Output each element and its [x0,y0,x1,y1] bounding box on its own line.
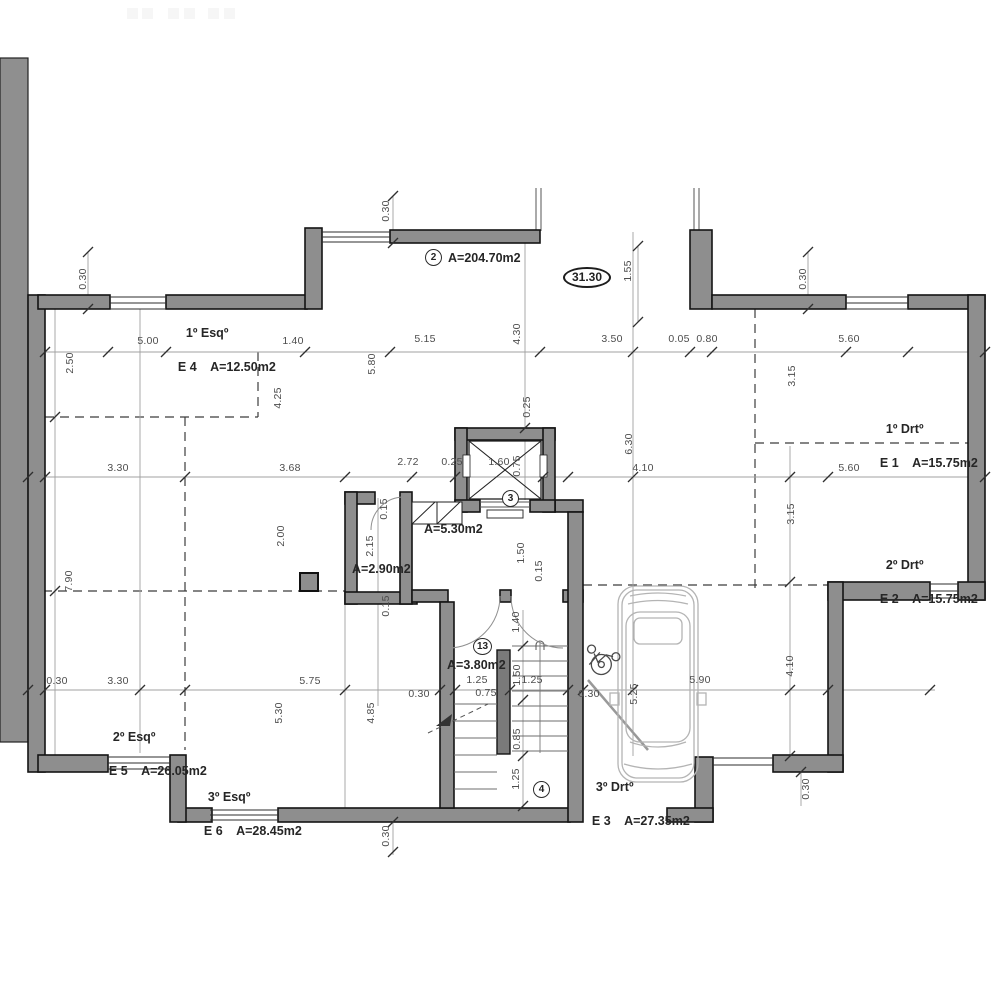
dim-label: 0.30 [380,825,392,846]
dim-label: 0.25 [441,456,462,468]
unit-area: E 2 A=15.75m2 [880,592,978,606]
room-label-wc: A=2.90m2 [352,562,411,576]
dim-label: 0.15 [533,560,545,581]
dim-label: 1.50 [511,664,523,685]
dim-label: 0.80 [696,333,717,345]
dim-label: 2.00 [275,525,287,546]
dim-label: 5.90 [689,674,710,686]
neighbor-building-wall [0,58,28,742]
unit-floor: 3º Drtº [592,780,634,794]
dim-label: 5.60 [838,462,859,474]
dim-label: 0.25 [521,396,533,417]
zone-2-label: 2 A=204.70m2 [425,249,521,266]
dim-label: 5.25 [628,683,640,704]
dim-label: 5.60 [838,333,859,345]
column-pillar [300,573,318,591]
dim-label: 3.30 [107,675,128,687]
dim-label: 3.68 [279,462,300,474]
dim-label: 1.25 [521,674,542,686]
dim-label: 4.10 [632,462,653,474]
entry-steps-hatch [412,502,462,524]
unit-label-e2: 2º Drtº E 2 A=15.75m2 [866,540,978,625]
dim-label: 0.15 [380,595,392,616]
dim-label: 0.30 [380,200,392,221]
unit-floor: 1º Drtº [880,422,924,436]
unit-label-e6: 3º Esqº E 6 A=28.45m2 [190,772,302,857]
dim-label: 0.30 [578,688,599,700]
dim-label: 1.25 [466,674,487,686]
elevator [412,428,555,524]
dim-label: 1.60 [488,456,509,468]
dim-label: 1.55 [622,260,634,281]
dim-label: 3.50 [601,333,622,345]
wheelchair-icon [579,635,623,679]
dim-label: 0.30 [46,675,67,687]
unit-area: E 1 A=15.75m2 [880,456,978,470]
unit-area: E 4 A=12.50m2 [178,360,276,374]
unit-label-e4: 1º Esqº E 4 A=12.50m2 [164,308,276,393]
dim-label: 0.30 [77,268,89,289]
dim-label: 3.15 [786,365,798,386]
floor-plan-canvas: 5.001.405.153.500.050.805.603.303.682.72… [0,0,1000,1000]
room-label-stairwell: A=3.80m2 [447,658,506,672]
unit-floor: 2º Drtº [880,558,924,572]
circled-number-4: 4 [533,781,550,798]
dim-label: 3.15 [785,503,797,524]
circled-number-3: 3 [502,490,519,507]
dim-label: 0.05 [668,333,689,345]
dim-label: 2.15 [364,535,376,556]
dim-label: 6.30 [623,433,635,454]
unit-floor: 3º Esqº [204,790,250,804]
unit-label-e3: 3º Drtº E 3 A=27.35m2 [578,762,690,847]
level-marker: 31.30 [563,267,611,288]
dim-label: 1.40 [510,611,522,632]
dim-label: 4.10 [784,655,796,676]
dim-label: 1.25 [510,768,522,789]
dim-label: 4.30 [511,323,523,344]
dim-label: 2.72 [397,456,418,468]
zone-area: A=204.70m2 [448,251,521,265]
dim-label: 5.80 [366,353,378,374]
dim-label: 5.30 [273,702,285,723]
unit-floor: 2º Esqº [109,730,155,744]
dim-label: 0.30 [800,778,812,799]
dim-label: 0.75 [475,687,496,699]
dim-label: 1.40 [282,335,303,347]
circled-number-13: 13 [473,638,492,655]
dim-label: 2.50 [64,352,76,373]
dim-label: 0.30 [408,688,429,700]
circled-number-2: 2 [425,249,442,266]
unit-floor: 1º Esqº [178,326,228,340]
boundary-lines [536,188,699,231]
dim-label: 0.15 [378,498,390,519]
unit-area: E 6 A=28.45m2 [204,824,302,838]
dim-label: 0.30 [797,268,809,289]
dim-label: 5.75 [299,675,320,687]
unit-label-e1: 1º Drtº E 1 A=15.75m2 [866,404,978,489]
dim-label: 7.90 [63,570,75,591]
floor-plan-drawing [0,0,1000,1000]
dim-label: 0.85 [511,728,523,749]
dim-label: 4.85 [365,702,377,723]
dim-label: 3.30 [107,462,128,474]
unit-area: E 3 A=27.35m2 [592,814,690,828]
dim-label: 5.15 [414,333,435,345]
dim-label: 0.75 [511,455,523,476]
dim-label: 5.00 [137,335,158,347]
dim-label: 1.50 [515,542,527,563]
room-label-hall: A=5.30m2 [424,522,483,536]
